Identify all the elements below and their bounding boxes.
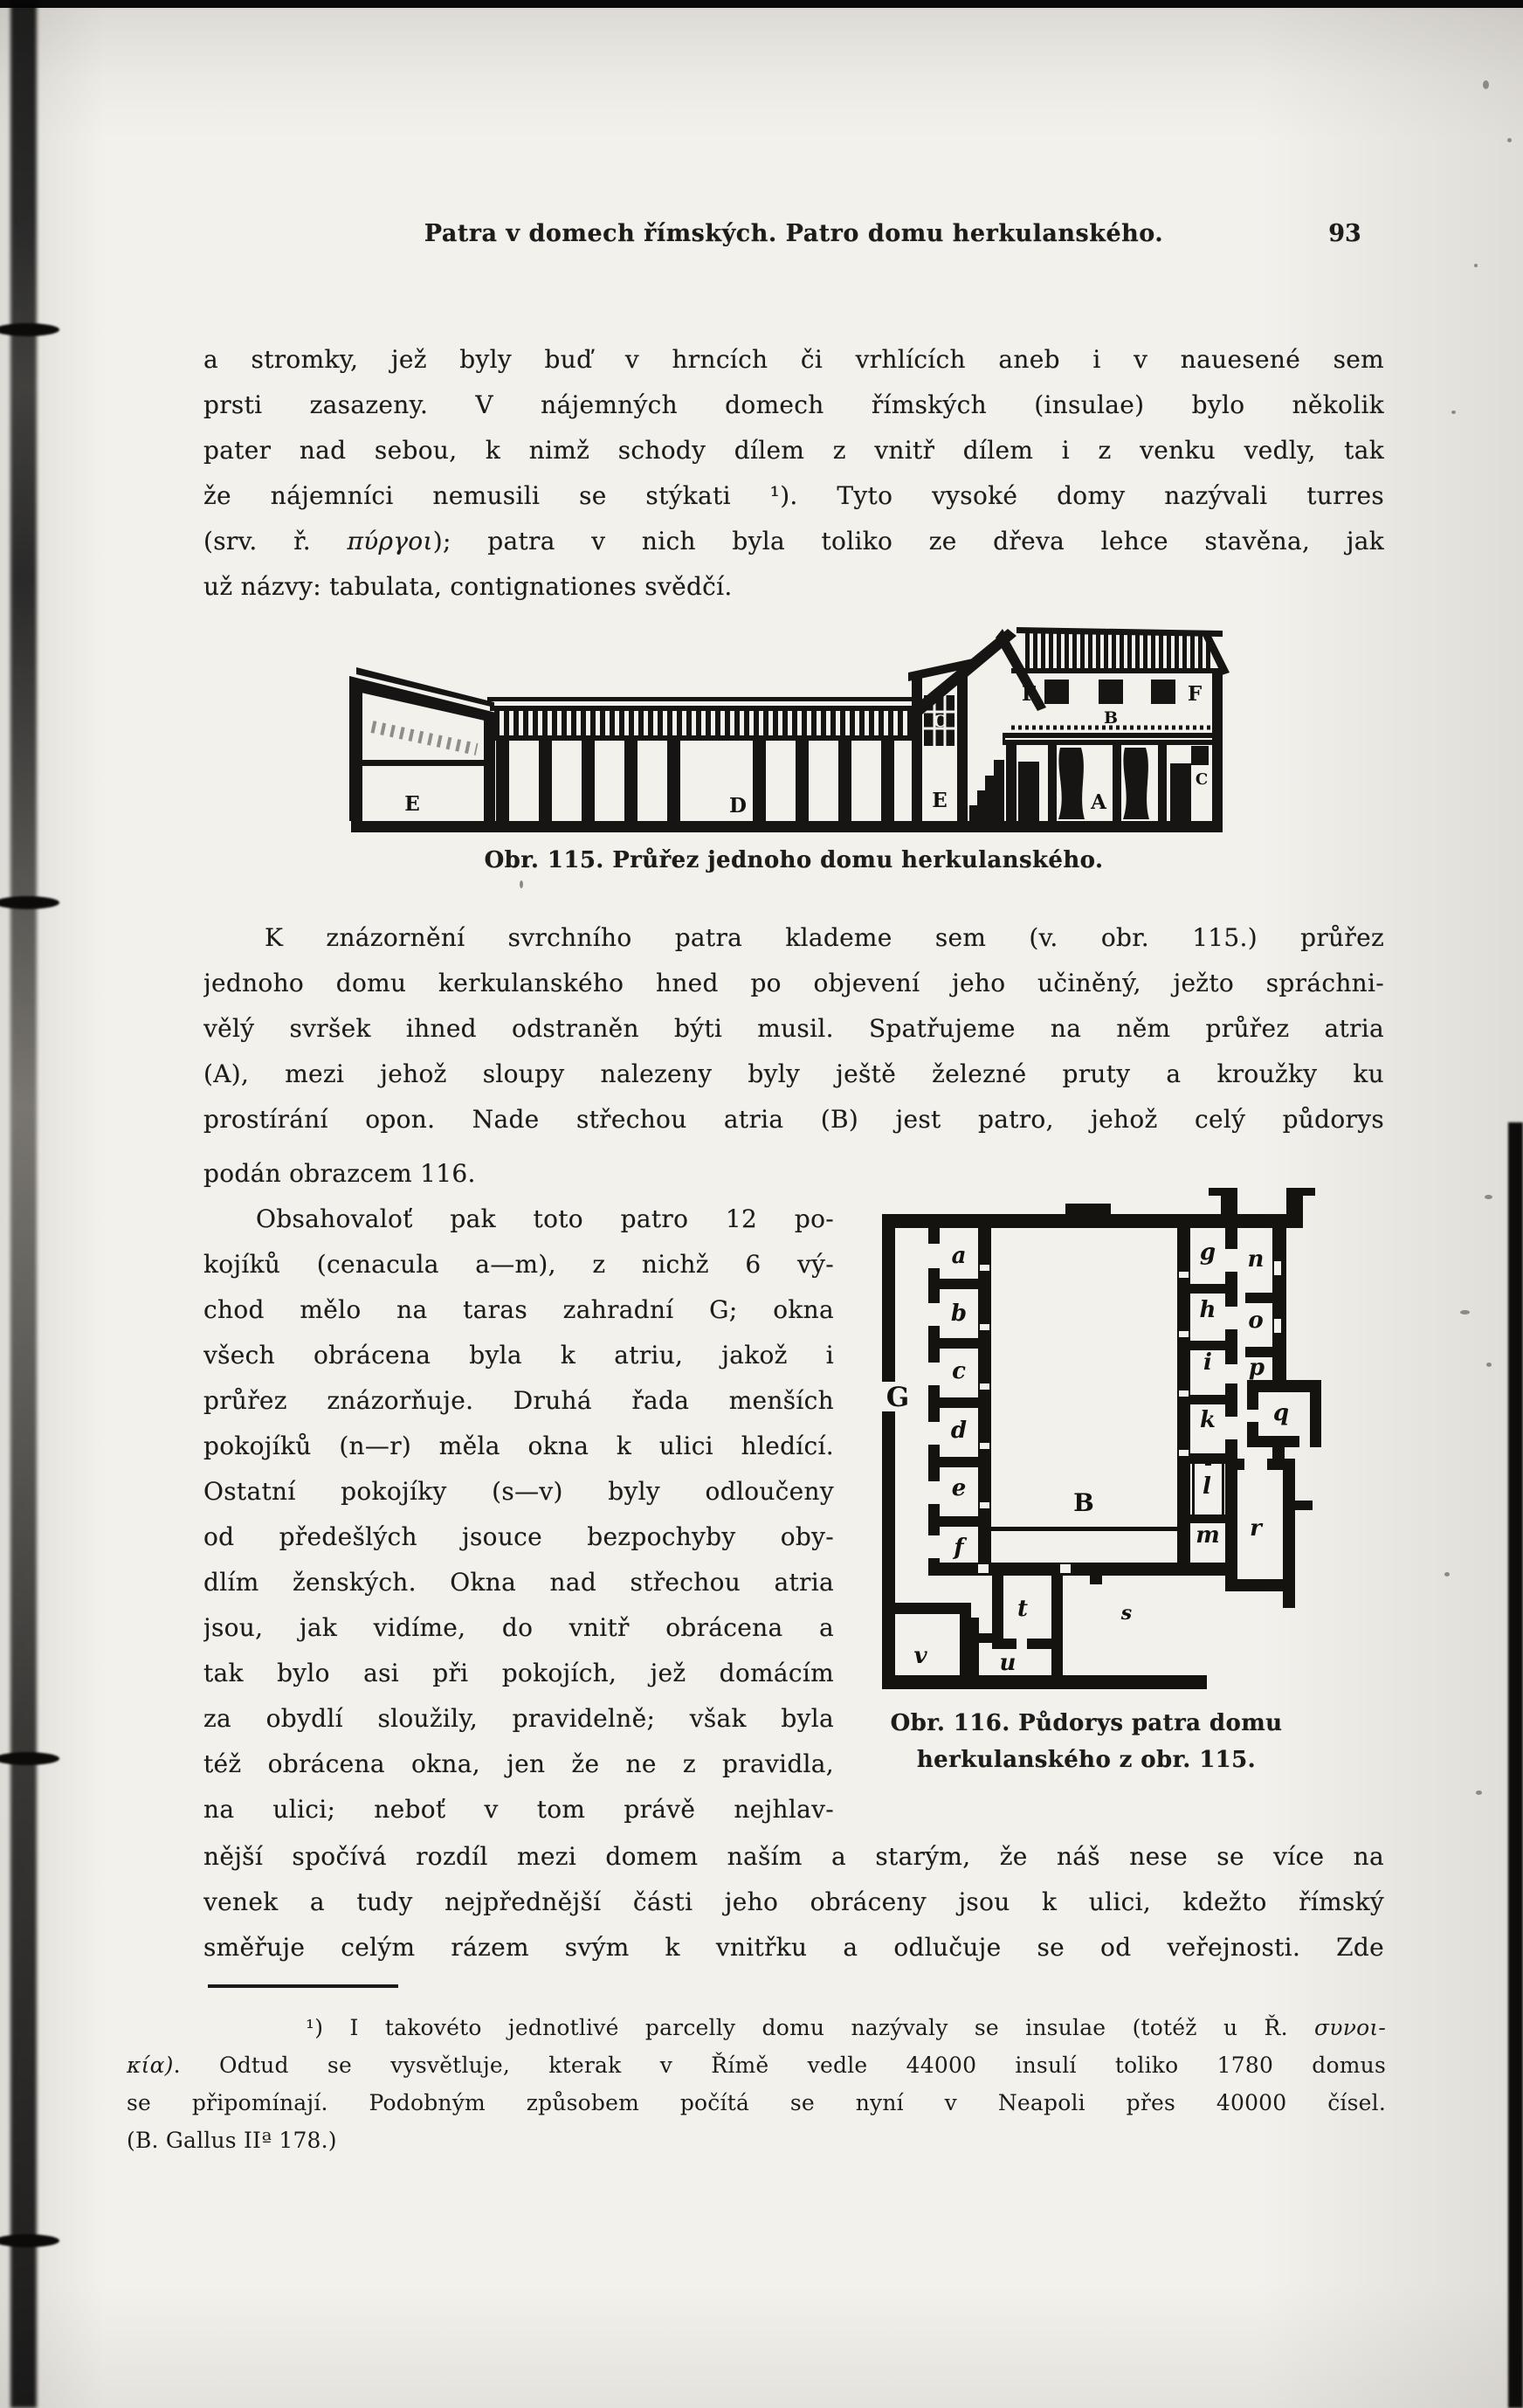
text-line: (srv. ř. πύργοι); patra v nich byla toli… [203,519,1384,564]
fig116-room-k: k [1200,1407,1216,1433]
fig116-room-e: e [952,1475,967,1501]
text-line: (A), mezi jehož sloupy nalezeny byly ješ… [203,1052,1384,1097]
text-line: směřuje celým rázem svým k vnitřku a odl… [203,1925,1384,1970]
text-line: všech obrácena byla k atriu, jakož i [203,1333,834,1378]
figure-115-caption: Obr. 115. Průřez jednoho domu herkulansk… [203,847,1384,873]
scan-speck [1444,1572,1450,1577]
scan-speck [1460,1310,1470,1314]
fig116-room-p: p [1249,1355,1265,1381]
binding-stitch [0,2234,59,2247]
paragraph-3: nější spočívá rozdíl mezi domem naším a … [203,1834,1384,1970]
fig116-room-m: m [1196,1522,1220,1549]
text-line: za obydlí sloužily, pravidelně; však byl… [203,1696,834,1742]
text-segment: ¹) I takovéto jednotlivé parcelly domu n… [306,2015,1314,2040]
text-line: K znázornění svrchního patra klademe sem… [203,915,1384,961]
scan-speck [1476,1790,1482,1795]
footnote-line: ¹) I takovéto jednotlivé parcelly domu n… [127,2009,1386,2046]
figure-116-caption: Obr. 116. Půdorys patra domu herkulanské… [840,1705,1333,1778]
caption-line: herkulanského z obr. 115. [840,1742,1333,1778]
page-right-edge [1508,1122,1523,2408]
text-line: prsti zasazeny. V nájemných domech římsk… [203,383,1384,428]
fig116-room-b: b [951,1301,967,1327]
text-line: pater nad sebou, k nimž schody dílem z v… [203,428,1384,473]
fig116-room-d: d [951,1418,967,1444]
text-line: chod mělo na taras zahradní G; okna [203,1287,834,1333]
text-line: dlím ženských. Okna nad střechou atria [203,1560,834,1605]
fig116-room-r: r [1250,1515,1264,1542]
text-line: nější spočívá rozdíl mezi domem naším a … [203,1834,1384,1880]
text-line: též obrácena okna, jen že ne z pravidla, [203,1742,834,1787]
footnote-line: (B. Gallus IIª 178.) [127,2122,1386,2159]
text-line: Obsahovaloť pak toto patro 12 po- [203,1197,834,1242]
footnote-line: se připomínají. Podobným způsobem počítá… [127,2084,1386,2122]
text-segment: . Odtud se vysvětluje, kterak v Římě ved… [174,2053,1386,2078]
fig116-room-i: i [1203,1349,1212,1376]
scan-speck [1507,138,1512,142]
scan-speck [520,880,523,888]
binding-stitch [0,1752,59,1765]
text-line: průřez znázorňuje. Druhá řada menších [203,1378,834,1424]
paragraph-2: K znázornění svrchního patra klademe sem… [203,915,1384,1142]
text-segment: ); patra v nich byla toliko ze dřeva leh… [433,527,1384,555]
text-line: od předešlých jsouce bezpochyby oby- [203,1514,834,1560]
text-line: pokojíků (n—r) měla okna k ulici hledící… [203,1424,834,1469]
greek-term: κία) [127,2053,174,2078]
fig116-room-h: h [1200,1297,1216,1323]
text-line: podán obrazcem 116. [203,1151,834,1197]
fig116-room-u: u [1000,1650,1016,1676]
fig116-room-t: t [1017,1596,1028,1622]
column-text: podán obrazcem 116. Obsahovaloť pak toto… [203,1151,834,1832]
fig116-label-atrium: B [1073,1488,1094,1517]
fig116-room-c: c [952,1358,966,1384]
fig116-room-o: o [1248,1307,1263,1334]
greek-term: συνοι- [1314,2015,1386,2040]
scan-speck [1483,80,1489,89]
fig115-label-upper-right: F [1188,682,1203,706]
fig115-label-portico: D [729,794,747,818]
fig116-room-a: a [952,1243,967,1269]
scan-speck [1486,1363,1492,1367]
footnote-line: κία). Odtud se vysvětluje, kterak v Římě… [127,2046,1386,2084]
binding-stitch [0,323,59,336]
text-line: jednoho domu kerkulanského hned po objev… [203,961,1384,1006]
fig116-room-s: s [1120,1602,1132,1625]
greek-term: πύργοι [347,527,432,555]
text-line: a stromky, jež byly buď v hrncích či vrh… [203,337,1384,383]
fig116-room-q: q [1273,1400,1289,1426]
scan-speck [1474,264,1478,267]
fig115-label-upper-left: F [1022,682,1037,706]
text-line: kojíků (cenacula a—m), z nichž 6 vý- [203,1242,834,1287]
scan-speck [1485,1195,1492,1199]
footnote: ¹) I takovéto jednotlivé parcelly domu n… [127,2009,1386,2159]
text-segment: (srv. ř. [203,527,347,555]
fig116-room-v: v [913,1643,927,1669]
fig116-room-g: g [1200,1239,1216,1266]
text-line: už názvy: tabulata, contignationes svědč… [203,564,1384,610]
fig116-label-terrace: G [886,1382,909,1413]
fig116-room-l: l [1203,1473,1211,1500]
binding-stitch [0,896,59,909]
figure-116-floor-plan: a b c d e f g h i k l m n o p q r s t u … [880,1188,1331,1694]
fig115-label-tower-base: E [932,789,948,812]
fig115-label-atrium: A [1090,790,1107,814]
text-line: jsou, jak vidíme, do vnitř obrácena a [203,1605,834,1651]
page-number: 93 [1310,220,1380,247]
figure-115-cross-section: E D C E F B F A C [346,622,1231,842]
text-line: na ulici; neboť v tom právě nejhlav- [203,1787,834,1832]
running-header: Patra v domech římských. Patro domu herk… [203,220,1384,247]
cross-section-drawing: E D C E F B F A C [346,622,1231,842]
text-line: vělý svršek ihned odstraněn býti musil. … [203,1006,1384,1052]
text-line: prostírání opon. Nade střechou atria (B)… [203,1097,1384,1142]
fig115-label-upper-floor: B [1104,708,1118,728]
fig115-label-right-end: C [1196,770,1208,789]
page-top-edge [0,0,1523,8]
caption-line: Obr. 116. Půdorys patra domu [840,1705,1333,1742]
footnote-rule [208,1984,398,1988]
text-line: že nájemníci nemusili se stýkati ¹). Tyt… [203,473,1384,519]
fig116-room-n: n [1248,1246,1265,1273]
text-line: tak bylo asi při pokojích, jež domácím [203,1651,834,1696]
book-page-scan: Patra v domech římských. Patro domu herk… [0,0,1523,2408]
fig115-label-shed: E [404,792,420,816]
text-line: Ostatní pokojíky (s—v) byly odloučeny [203,1469,834,1514]
fig115-label-tower-window: C [933,712,946,731]
paragraph-1: a stromky, jež byly buď v hrncích či vrh… [203,337,1384,610]
text-line: venek a tudy nejpřednější části jeho obr… [203,1880,1384,1925]
fig116-room-f: f [952,1535,967,1561]
scan-speck [1451,411,1456,414]
binding-shadow [10,0,37,2408]
floor-plan-drawing: a b c d e f g h i k l m n o p q r s t u … [880,1188,1331,1694]
